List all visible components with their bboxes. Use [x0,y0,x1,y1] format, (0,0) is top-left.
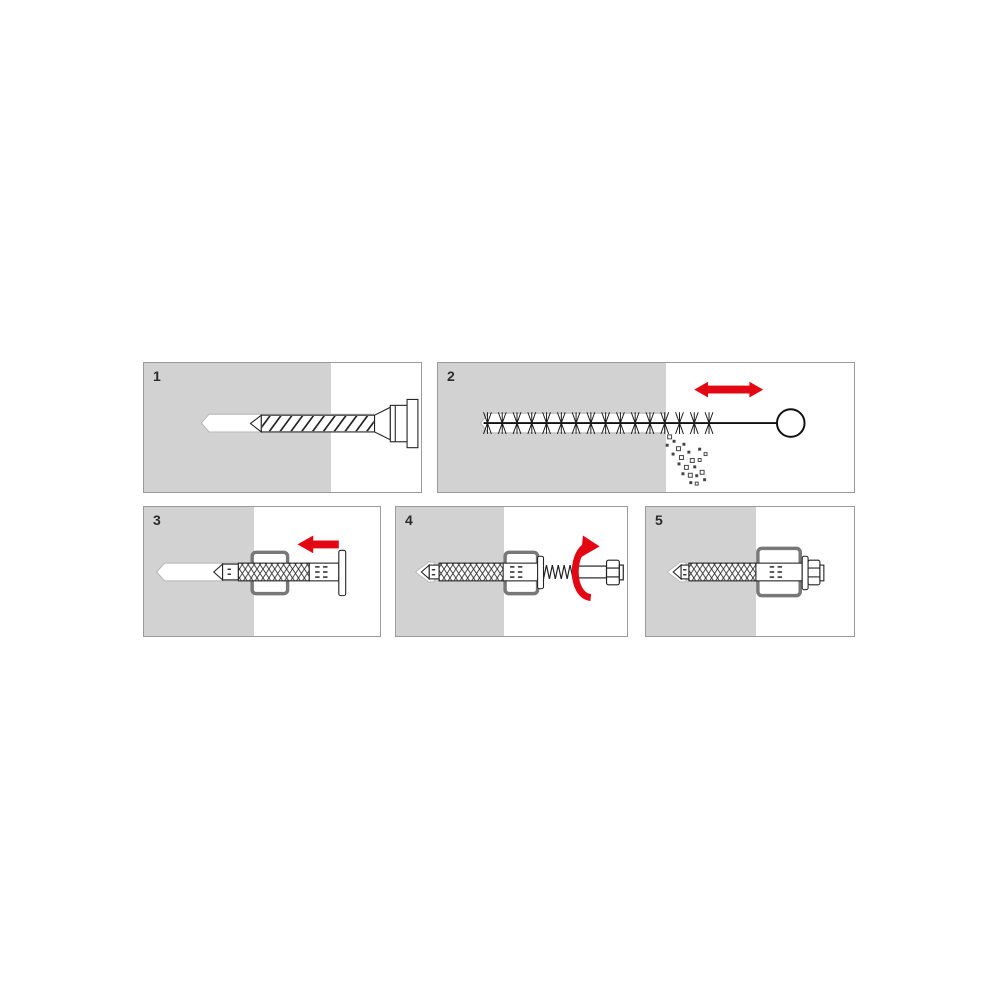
step-number: 4 [405,512,413,528]
step-panel-2: 2 [437,362,855,493]
insert-step-illustration [144,507,380,636]
step-number: 3 [153,512,161,528]
step-panel-1: 1 [143,362,422,493]
step-panel-3: 3 [143,506,381,637]
brush-ring-handle [777,409,805,437]
step-panel-5: 5 [645,506,855,637]
anchor-collar [802,556,808,589]
dust-particles [666,435,707,485]
frame-anchor-icon [673,563,758,581]
back-and-forth-arrow-icon [694,382,763,398]
step-number: 2 [447,368,455,384]
screw-icon [544,560,624,585]
brush-step-illustration [438,363,854,492]
step-panel-4: 4 [395,506,628,637]
insert-arrow-icon [297,536,338,554]
installed-step-illustration [646,507,854,636]
step-number: 5 [655,512,663,528]
hex-head-icon [607,560,620,585]
anchor-collar [339,550,346,595]
drill-chuck-icon [375,399,418,447]
step-number: 1 [153,368,161,384]
drill-step-illustration [144,363,421,492]
anchor-collar [538,556,544,588]
instruction-sheet: 1 [0,0,1000,1000]
screw-thread [544,565,574,579]
screw-step-illustration [396,507,627,636]
frame-anchor-icon [421,563,505,581]
drill-bit-icon [250,414,379,433]
hex-head-icon [808,560,820,585]
